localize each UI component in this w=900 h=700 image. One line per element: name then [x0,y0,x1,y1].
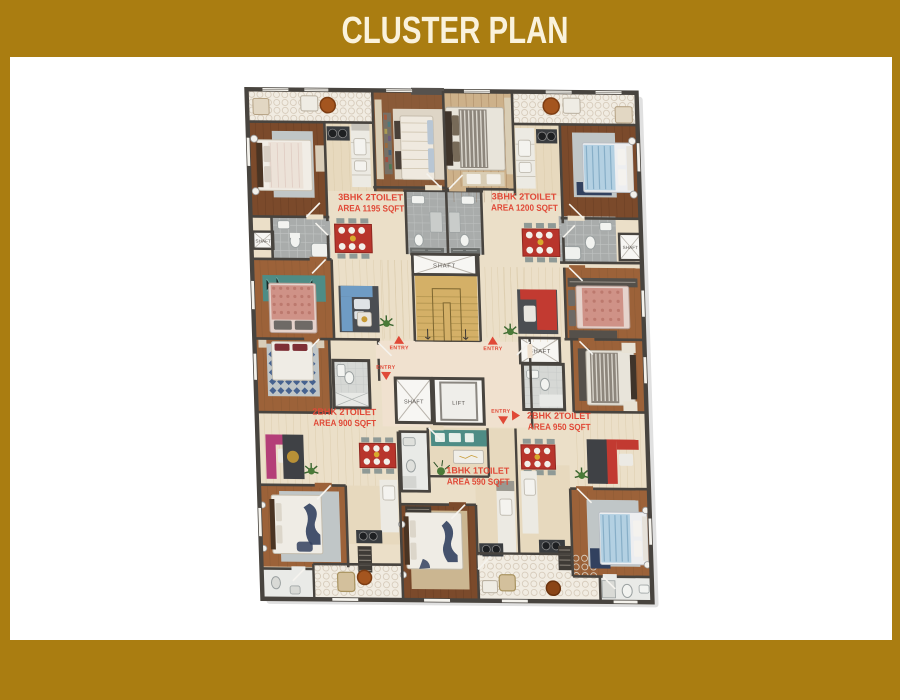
svg-text:SHAFT: SHAFT [404,399,424,405]
svg-text:ENTRY: ENTRY [376,365,396,371]
svg-text:LIFT: LIFT [452,401,465,407]
svg-text:AREA 900 SQFT: AREA 900 SQFT [313,418,377,429]
svg-text:2BHK 2TOILET: 2BHK 2TOILET [312,407,377,418]
svg-text:AREA 1195 SQFT: AREA 1195 SQFT [337,203,405,214]
svg-text:ENTRY: ENTRY [483,346,503,352]
svg-text:CLUSTER PLAN: CLUSTER PLAN [342,10,569,52]
svg-text:AREA 1200 SQFT: AREA 1200 SQFT [491,202,559,213]
svg-text:3BHK 2TOILET: 3BHK 2TOILET [338,192,404,203]
svg-text:1BHK 1TOILET: 1BHK 1TOILET [446,465,510,476]
svg-text:2BHK 2TOILET: 2BHK 2TOILET [527,410,592,421]
svg-text:AREA 950 SQFT: AREA 950 SQFT [528,422,592,433]
svg-text:3BHK 2TOILET: 3BHK 2TOILET [492,191,558,202]
svg-text:ENTRY: ENTRY [491,409,511,415]
svg-text:SHAFT: SHAFT [255,239,271,244]
svg-text:SHAFT: SHAFT [623,245,639,250]
svg-text:AREA 590 SQFT: AREA 590 SQFT [447,476,511,487]
svg-text:SHAFT: SHAFT [433,262,456,269]
svg-text:ENTRY: ENTRY [389,345,409,351]
